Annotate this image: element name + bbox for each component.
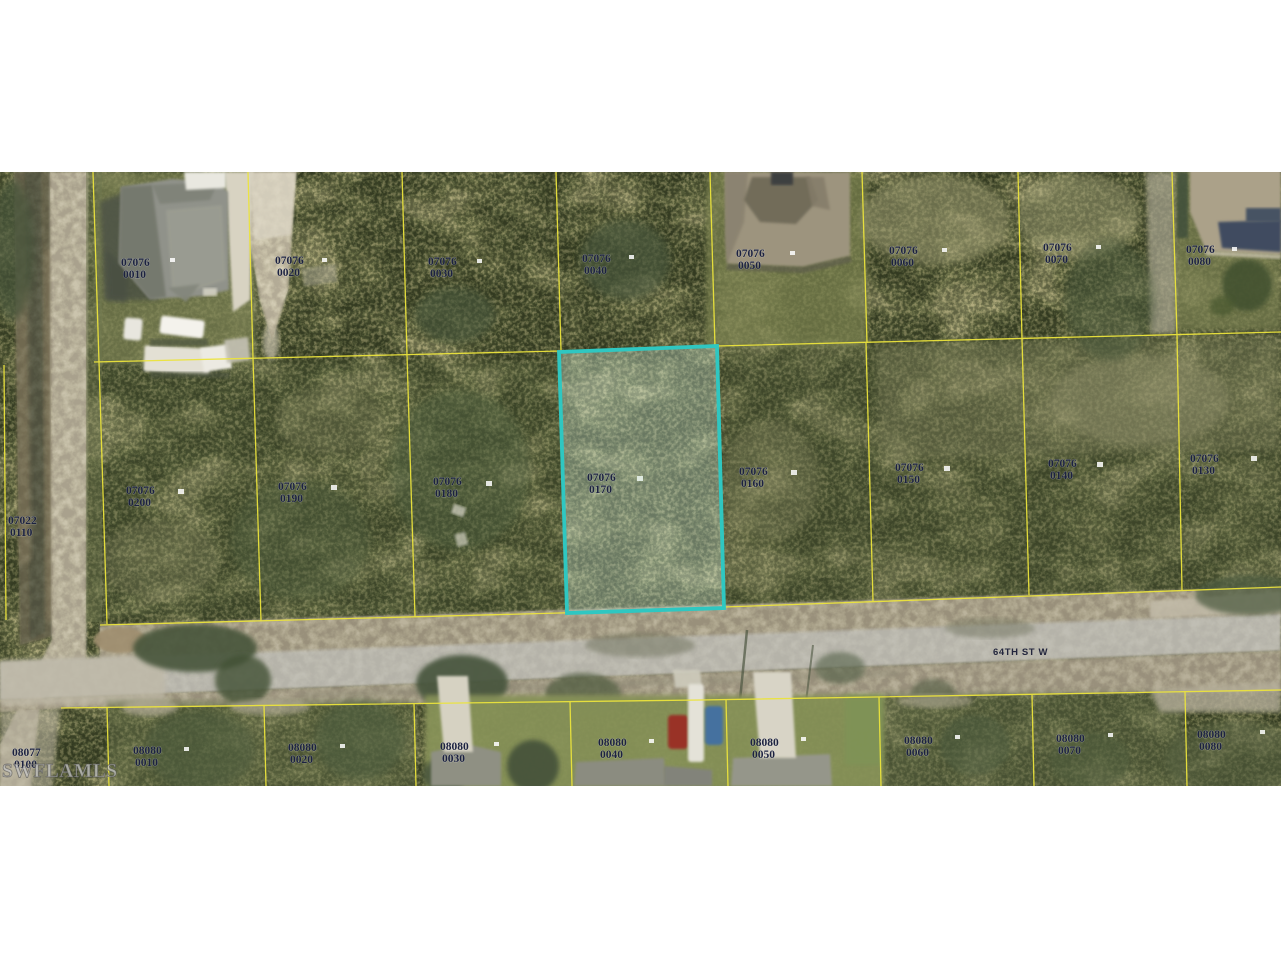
- svg-text:0060: 0060: [891, 257, 914, 269]
- svg-text:0070: 0070: [1058, 745, 1081, 757]
- svg-text:08080: 08080: [904, 735, 933, 747]
- svg-text:07076: 07076: [433, 476, 462, 488]
- svg-text:07076: 07076: [889, 245, 918, 257]
- svg-text:0010: 0010: [123, 269, 146, 281]
- svg-text:07076: 07076: [428, 256, 457, 268]
- svg-text:0160: 0160: [741, 478, 764, 490]
- svg-text:0040: 0040: [600, 749, 623, 761]
- svg-text:0030: 0030: [430, 268, 453, 280]
- svg-text:07076: 07076: [1186, 244, 1215, 256]
- svg-text:SWFLAMLS: SWFLAMLS: [2, 761, 118, 782]
- svg-text:0200: 0200: [128, 497, 151, 509]
- svg-text:07076: 07076: [895, 462, 924, 474]
- svg-text:0050: 0050: [752, 749, 775, 761]
- svg-text:64TH ST W: 64TH ST W: [993, 647, 1048, 658]
- svg-text:07076: 07076: [1190, 453, 1219, 465]
- svg-text:07076: 07076: [582, 253, 611, 265]
- svg-text:0020: 0020: [290, 754, 313, 766]
- svg-text:07076: 07076: [736, 248, 765, 260]
- svg-text:07076: 07076: [739, 466, 768, 478]
- svg-text:0150: 0150: [897, 474, 920, 486]
- svg-text:0020: 0020: [277, 267, 300, 279]
- svg-text:07076: 07076: [121, 257, 150, 269]
- svg-text:07022: 07022: [8, 515, 37, 527]
- svg-text:0080: 0080: [1188, 256, 1211, 268]
- svg-text:07076: 07076: [1043, 242, 1072, 254]
- svg-text:08080: 08080: [750, 737, 779, 749]
- svg-text:0080: 0080: [1199, 741, 1222, 753]
- svg-text:0190: 0190: [280, 493, 303, 505]
- svg-text:0130: 0130: [1192, 465, 1215, 477]
- svg-text:07076: 07076: [587, 472, 616, 484]
- svg-text:07076: 07076: [275, 255, 304, 267]
- svg-text:0070: 0070: [1045, 254, 1068, 266]
- svg-text:0050: 0050: [738, 260, 761, 272]
- svg-text:08080: 08080: [288, 742, 317, 754]
- svg-text:0060: 0060: [906, 747, 929, 759]
- svg-text:0180: 0180: [435, 488, 458, 500]
- svg-text:08077: 08077: [12, 747, 41, 759]
- svg-text:08080: 08080: [133, 745, 162, 757]
- svg-text:07076: 07076: [126, 485, 155, 497]
- svg-text:08080: 08080: [1197, 729, 1226, 741]
- svg-text:08080: 08080: [598, 737, 627, 749]
- svg-text:0110: 0110: [10, 527, 33, 539]
- svg-text:0170: 0170: [589, 484, 612, 496]
- svg-text:07076: 07076: [1048, 458, 1077, 470]
- svg-text:0140: 0140: [1050, 470, 1073, 482]
- svg-text:08080: 08080: [1056, 733, 1085, 745]
- svg-text:0040: 0040: [584, 265, 607, 277]
- svg-text:08080: 08080: [440, 741, 469, 753]
- svg-text:07076: 07076: [278, 481, 307, 493]
- svg-text:0030: 0030: [442, 753, 465, 765]
- svg-text:0010: 0010: [135, 757, 158, 769]
